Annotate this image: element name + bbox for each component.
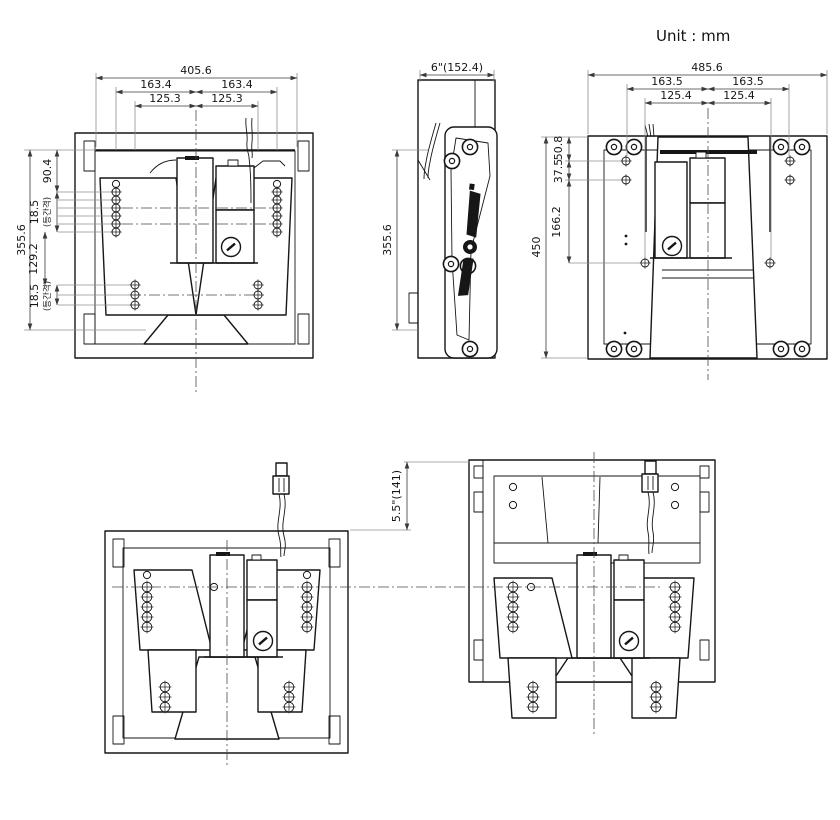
unit-label: Unit : mm [656,27,730,45]
rear-width-label: 485.6 [691,61,723,74]
travel-dimension: 5.5"(141) [350,462,470,530]
side-view: 6"(152.4) 355.6 [381,61,497,358]
screw-icon [620,632,639,651]
front-hole-span-left-label: 163.4 [140,78,172,91]
rear-hole-span-left-label: 163.5 [651,75,683,88]
rear-view: 485.6 163.5 163.5 125.4 125.4 450 50.8 3… [530,61,827,380]
rear-inner-span-left-label: 125.4 [660,89,692,102]
screw-icon [222,238,241,257]
rear-hole-span-right-label: 163.5 [732,75,764,88]
travel-drop-label: 5.5"(141) [390,470,403,522]
front-view: 405.6 163.4 163.4 125.3 125.3 355.6 90.4… [15,64,313,392]
front-top-pitch-label: 18.5 [28,200,41,225]
front-inner-span-right-label: 125.3 [211,92,243,105]
side-arm-plate [443,127,497,358]
front-bottom-pitch-note: (등간격) [42,281,53,311]
front-inner-span-left-label: 125.3 [149,92,181,105]
travel-view-extended [469,460,715,718]
rear-hole-pitch-label: 37.5 [552,159,565,184]
side-depth-label: 6"(152.4) [431,61,483,74]
travel-view-retracted [105,463,348,753]
front-mid-span-label: 129.2 [27,243,40,275]
rear-top-to-hole-label: 50.8 [552,136,565,161]
drawing-canvas: Unit : mm [0,0,840,820]
rear-mid-span-label: 166.2 [550,206,563,238]
side-height-label: 355.6 [381,224,394,256]
drawing-sheet: Unit : mm [0,0,840,820]
rear-height-label: 450 [530,237,543,258]
screw-icon [663,237,682,256]
rear-inner-span-right-label: 125.4 [723,89,755,102]
cable-stub [645,124,654,137]
front-top-offset-label: 90.4 [41,159,54,184]
front-bottom-pitch-label: 18.5 [28,284,41,309]
front-top-pitch-note: (등간격) [42,197,53,227]
front-hole-span-right-label: 163.4 [221,78,253,91]
front-width-label: 405.6 [180,64,212,77]
screw-icon [254,632,273,651]
